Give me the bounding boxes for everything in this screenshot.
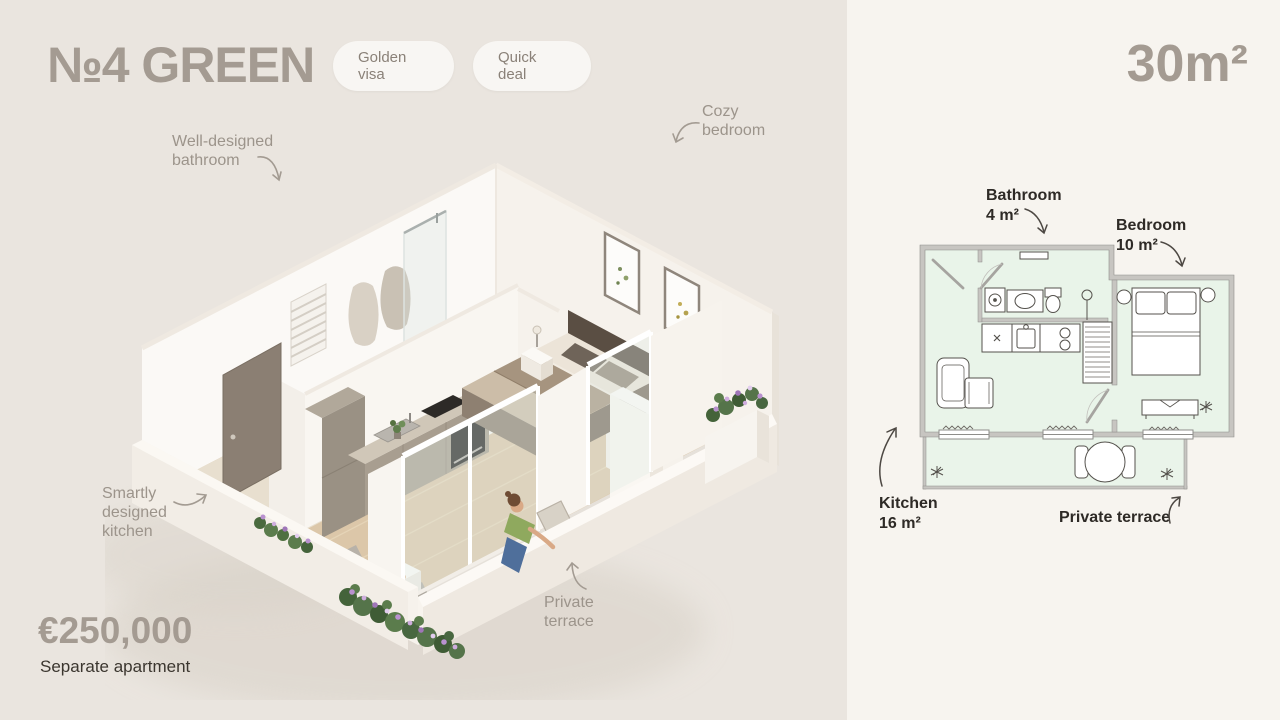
annotation-kitchen: Smartlydesignedkitchen bbox=[102, 484, 167, 541]
plan-windows bbox=[939, 430, 1193, 439]
arrow-icon bbox=[255, 152, 285, 186]
plan-wardrobe bbox=[1083, 322, 1112, 383]
arrow-icon bbox=[670, 118, 702, 148]
arrow-icon bbox=[1022, 206, 1050, 238]
arrow-icon bbox=[1164, 494, 1188, 526]
annotation-terrace: Privateterrace bbox=[544, 593, 594, 631]
arrow-icon bbox=[172, 490, 210, 510]
plan-bed bbox=[1117, 288, 1215, 375]
badge-golden-visa[interactable]: Golden visa bbox=[333, 41, 454, 91]
plan-label-terrace: Private terrace bbox=[1059, 508, 1170, 528]
arrow-icon bbox=[874, 424, 904, 490]
price-type-label: Separate apartment bbox=[40, 657, 190, 677]
arrow-icon bbox=[1158, 238, 1188, 270]
plan-terrace-table bbox=[1075, 442, 1135, 482]
plan-kitchen-counter bbox=[982, 324, 1080, 352]
listing-page: №4 GREEN Golden visa Quick deal 30m² bbox=[0, 0, 1280, 720]
total-area-label: 30m² bbox=[1127, 34, 1248, 94]
price-amount: €250,000 bbox=[38, 610, 192, 652]
annotation-bedroom: Cozybedroom bbox=[702, 102, 765, 140]
badge-quick-deal[interactable]: Quick deal bbox=[473, 41, 591, 91]
floorplan-drawing bbox=[915, 240, 1240, 492]
apartment-3d-render bbox=[105, 85, 795, 700]
arrow-icon bbox=[564, 558, 592, 592]
plan-label-kitchen: Kitchen16 m² bbox=[879, 494, 938, 534]
